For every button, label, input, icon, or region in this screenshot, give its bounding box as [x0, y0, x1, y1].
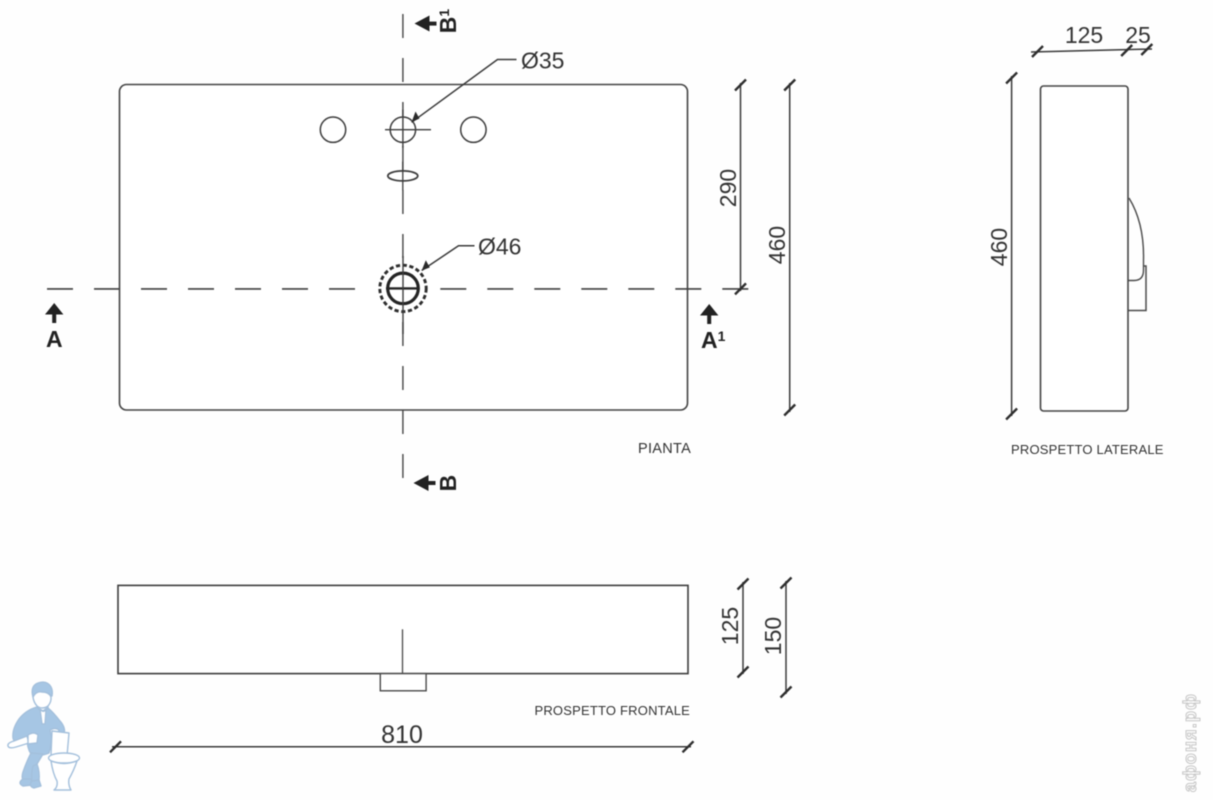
svg-text:Ø46: Ø46	[478, 234, 521, 260]
svg-text:PROSPETTO LATERALE: PROSPETTO LATERALE	[1011, 442, 1164, 457]
svg-text:A: A	[46, 326, 63, 352]
svg-text:125: 125	[1065, 22, 1103, 48]
svg-text:PROSPETTO FRONTALE: PROSPETTO FRONTALE	[534, 703, 690, 718]
svg-text:460: 460	[764, 226, 790, 264]
svg-text:PIANTA: PIANTA	[638, 441, 691, 457]
svg-text:460: 460	[986, 228, 1012, 266]
svg-text:афоня.рф: афоня.рф	[1180, 693, 1200, 792]
svg-text:125: 125	[717, 607, 743, 645]
svg-text:150: 150	[760, 617, 786, 655]
svg-text:810: 810	[381, 721, 423, 749]
svg-text:B: B	[435, 475, 461, 492]
svg-text:25: 25	[1125, 22, 1151, 48]
svg-text:290: 290	[715, 169, 741, 207]
svg-text:Ø35: Ø35	[521, 48, 564, 74]
